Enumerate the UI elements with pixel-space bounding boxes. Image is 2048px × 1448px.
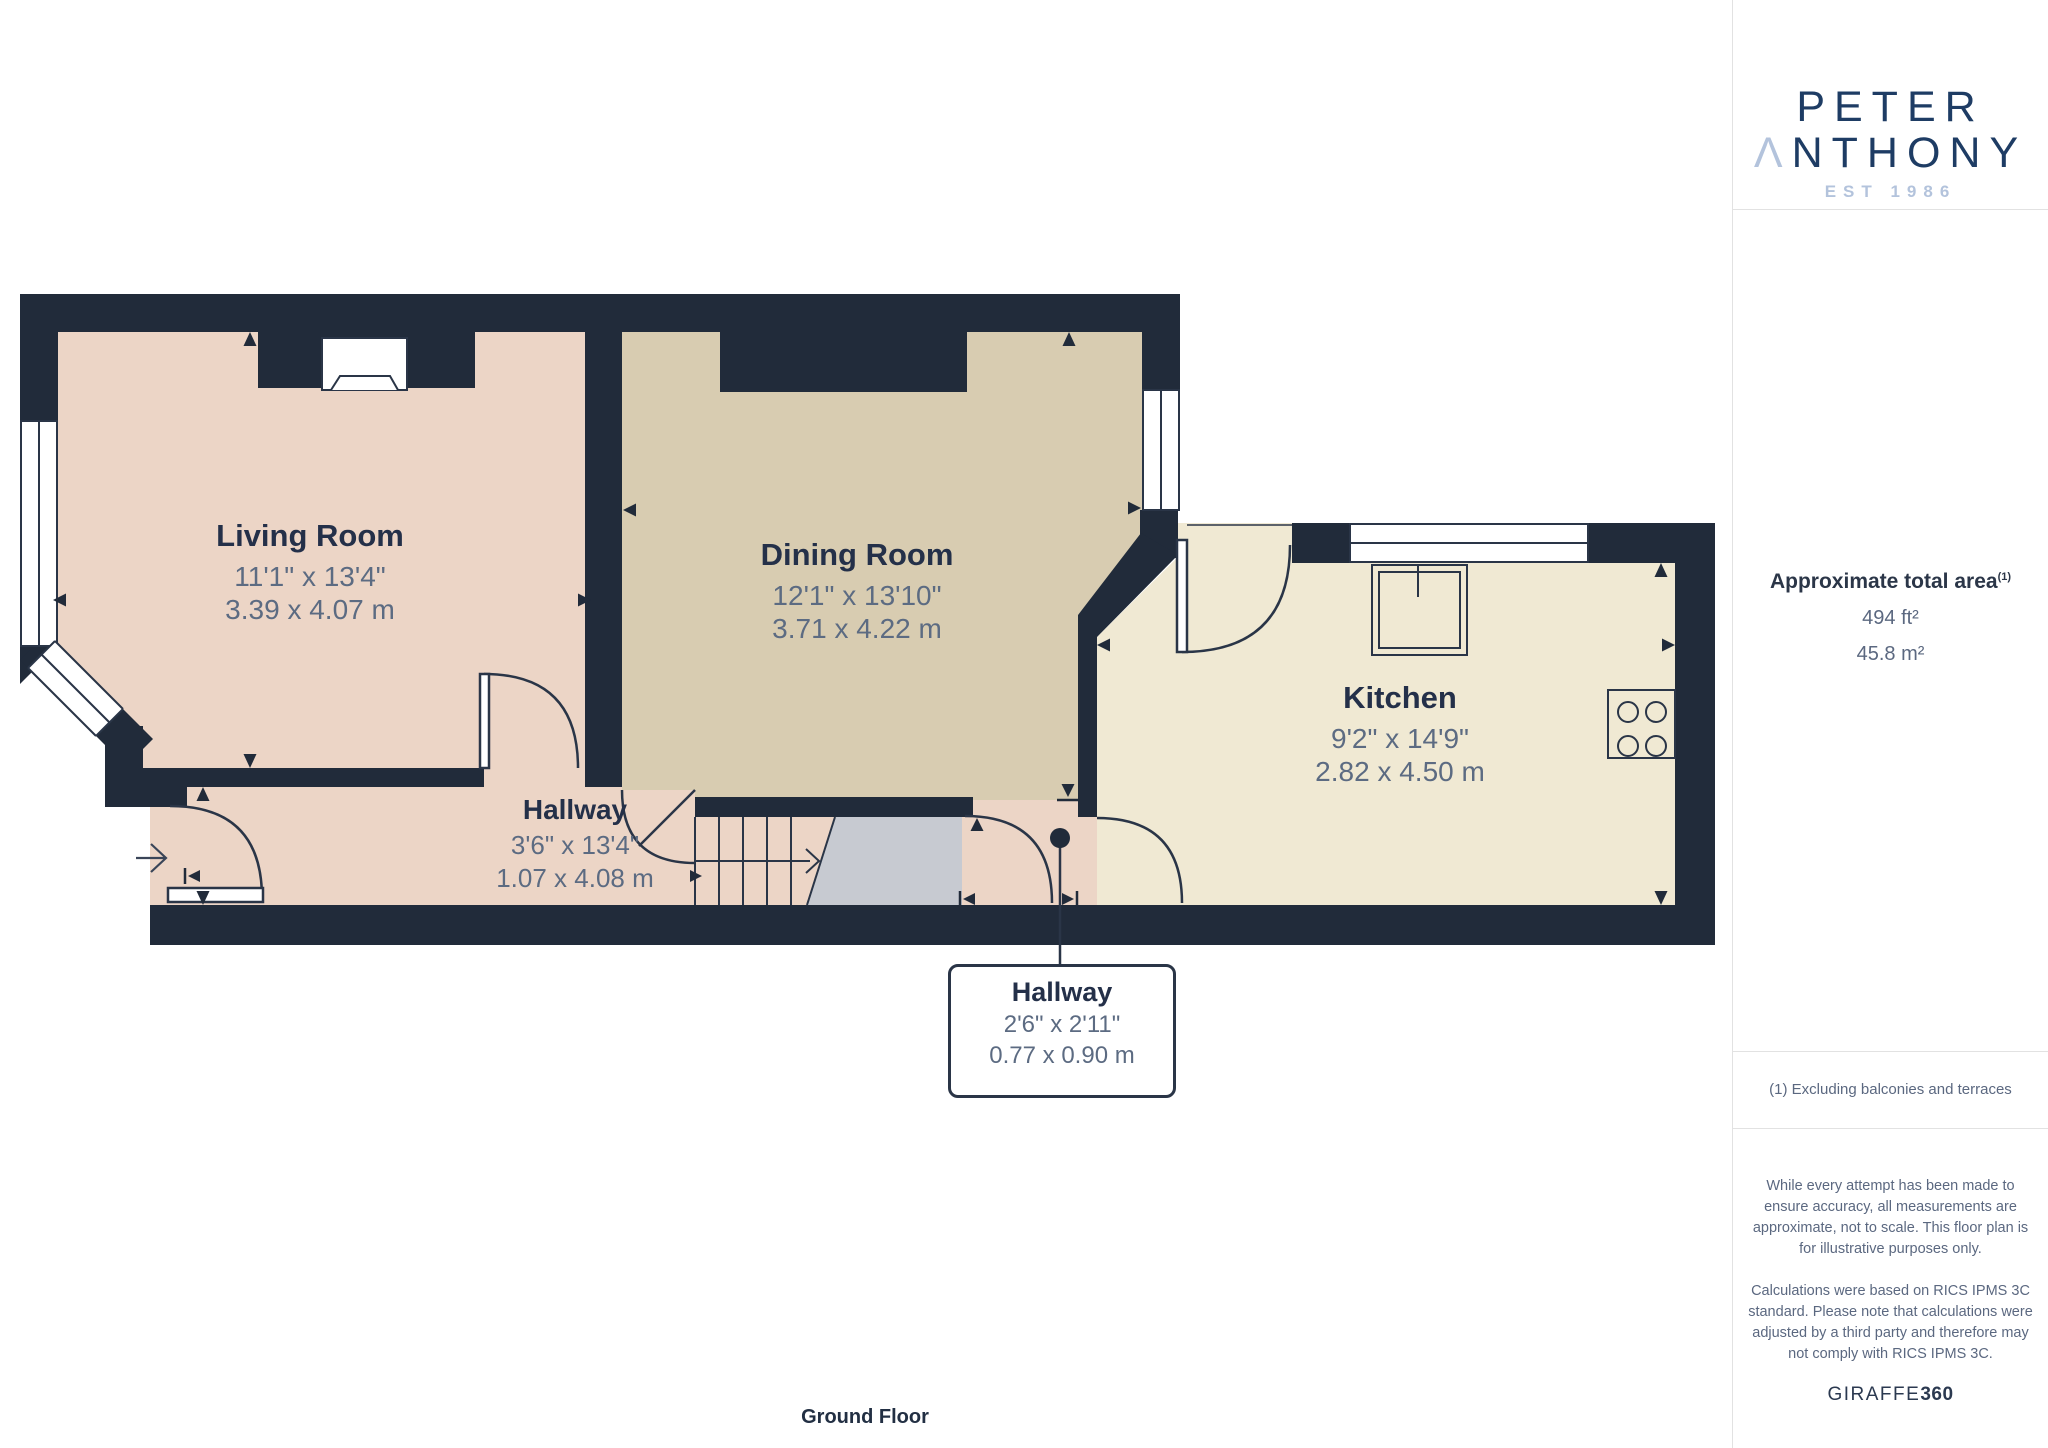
floorplan-page: Living Room 11'1" x 13'4" 3.39 x 4.07 m … xyxy=(0,0,2048,1448)
area-footnote: (1) Excluding balconies and terraces xyxy=(1733,1051,2048,1128)
logo-lambda: Λ xyxy=(1754,129,1792,177)
area-imperial: 494 ft² xyxy=(1733,607,2048,630)
wall-innerhall-kitchen xyxy=(1078,615,1097,817)
room-name: Kitchen xyxy=(1315,680,1485,716)
callout-anchor-dot xyxy=(1050,828,1070,848)
wall-right xyxy=(1675,523,1715,945)
kitchen-label: Kitchen 9'2" x 14'9" 2.82 x 4.50 m xyxy=(1315,680,1485,788)
dining-chimney-breast xyxy=(720,332,967,392)
sidebar-divider-1 xyxy=(1733,209,2048,210)
room-name: Hallway xyxy=(951,977,1173,1007)
wall-top xyxy=(20,294,1180,332)
fireplace xyxy=(322,338,407,390)
disclaimer-paragraph-1: While every attempt has been made to ens… xyxy=(1747,1176,2035,1260)
room-dims-metric: 3.39 x 4.07 m xyxy=(216,593,404,626)
room-dims-imperial: 11'1" x 13'4" xyxy=(216,560,404,593)
area-heading: Approximate total area(1) xyxy=(1733,570,2048,594)
wall-bay-corner xyxy=(105,726,143,787)
room-dims-metric: 2.82 x 4.50 m xyxy=(1315,755,1485,788)
room-name: Dining Room xyxy=(761,537,954,573)
disclaimer-paragraph-2: Calculations were based on RICS IPMS 3C … xyxy=(1747,1281,2035,1365)
disclaimer: While every attempt has been made to ens… xyxy=(1747,1176,2035,1386)
wall-living-dining xyxy=(585,332,622,787)
hallway-kitchen-doorway-floor xyxy=(1078,817,1097,905)
area-metric: 45.8 m² xyxy=(1733,643,2048,666)
hallway-callout: Hallway 2'6" x 2'11" 0.77 x 0.90 m xyxy=(948,964,1176,1098)
wall-dining-east-upper xyxy=(1142,332,1180,390)
wall-bottom xyxy=(150,905,1715,945)
giraffe360-logo: GIRAFFE360 xyxy=(1733,1384,2048,1406)
dining-east-window xyxy=(1142,390,1180,510)
room-name: Hallway xyxy=(496,794,654,825)
room-name: Living Room xyxy=(216,518,404,554)
logo-est: EST 1986 xyxy=(1733,182,2048,202)
hallway-floor-inner xyxy=(973,800,1078,905)
room-dims-metric: 1.07 x 4.08 m xyxy=(496,862,654,895)
logo-line2: ΛNTHONY xyxy=(1733,130,2048,176)
wall-left-step xyxy=(105,787,187,807)
room-dims-imperial: 3'6" x 13'4" xyxy=(496,829,654,862)
peter-anthony-logo: PETER ΛNTHONY EST 1986 xyxy=(1733,84,2048,202)
sidebar: PETER ΛNTHONY EST 1986 Approximate total… xyxy=(1732,0,2048,1448)
kitchen-window xyxy=(1350,523,1588,563)
wall-kitchen-top-left xyxy=(1292,523,1350,563)
wall-dining-bottom xyxy=(695,797,973,817)
floor-label: Ground Floor xyxy=(801,1406,929,1429)
footnote-marker: (1) xyxy=(1998,571,2011,583)
sidebar-divider-3 xyxy=(1733,1128,2048,1129)
logo-line2-rest: NTHONY xyxy=(1792,129,2028,177)
room-dims-imperial: 2'6" x 2'11" xyxy=(951,1009,1173,1040)
wall-living-bottom xyxy=(143,768,484,787)
living-door-opening-floor xyxy=(484,768,585,787)
fireplace-hearth xyxy=(331,376,398,390)
living-left-window xyxy=(20,421,58,646)
hallway-label: Hallway 3'6" x 13'4" 1.07 x 4.08 m xyxy=(496,794,654,895)
room-dims-imperial: 12'1" x 13'10" xyxy=(761,579,954,612)
logo-line1: PETER xyxy=(1733,84,2048,130)
room-dims-imperial: 9'2" x 14'9" xyxy=(1315,722,1485,755)
total-area-block: Approximate total area(1) 494 ft² 45.8 m… xyxy=(1733,570,2048,666)
living-room-label: Living Room 11'1" x 13'4" 3.39 x 4.07 m xyxy=(216,518,404,626)
dining-room-label: Dining Room 12'1" x 13'10" 3.71 x 4.22 m xyxy=(761,537,954,645)
room-dims-metric: 3.71 x 4.22 m xyxy=(761,612,954,645)
room-dims-metric: 0.77 x 0.90 m xyxy=(951,1040,1173,1071)
wall-left-upper xyxy=(20,294,58,421)
